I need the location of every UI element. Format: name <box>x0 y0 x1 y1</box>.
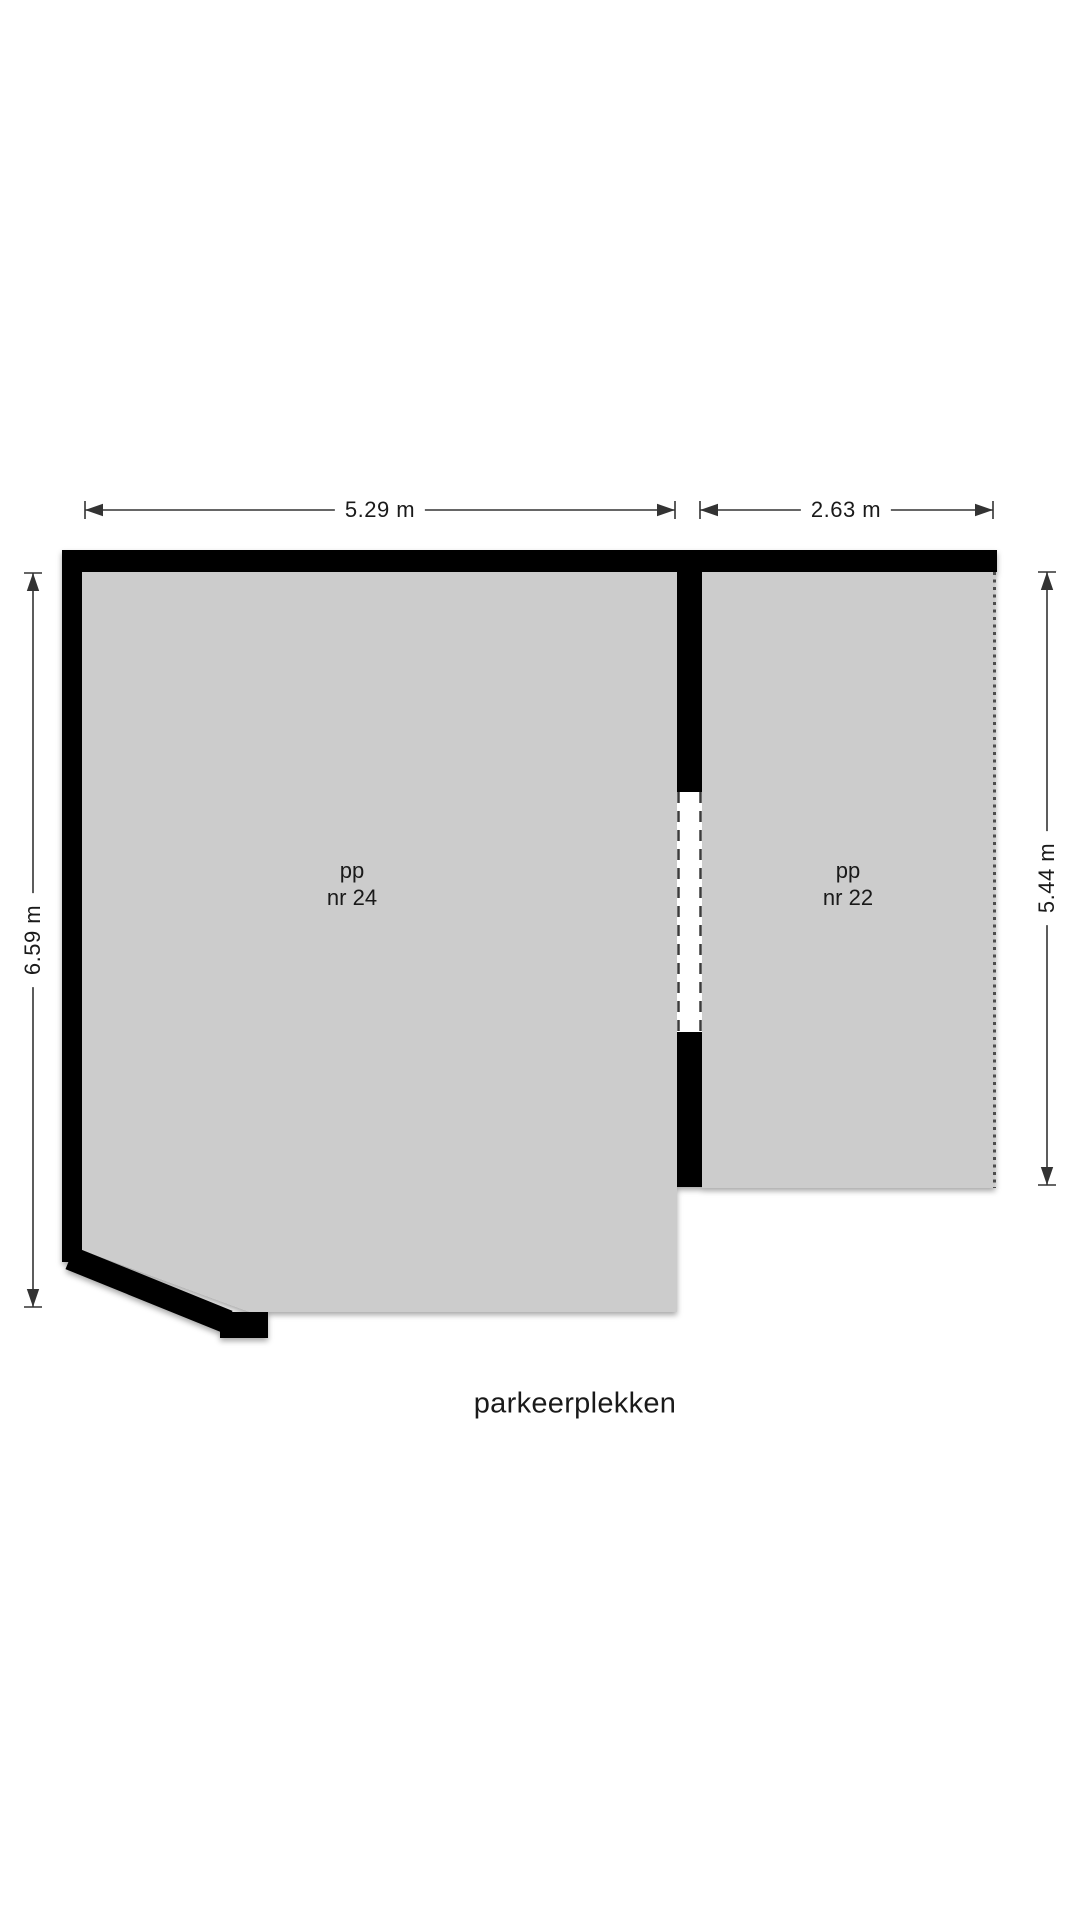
arrowhead-right <box>975 504 993 516</box>
arrowhead-up <box>1041 572 1053 590</box>
top-wall <box>62 550 997 572</box>
room-label-pp24-line2: nr 24 <box>327 884 377 911</box>
arrowhead-down <box>1041 1167 1053 1185</box>
floor-plan-svg <box>0 0 1080 1920</box>
room-label-pp22-line1: pp <box>823 857 873 884</box>
left-wall <box>62 550 82 1262</box>
floor-plan-page: 5.29 m 2.63 m 6.59 m 5.44 m pp nr 24 pp … <box>0 0 1080 1920</box>
dim-label-pp24-width: 5.29 m <box>335 497 425 523</box>
dim-label-pp22-height: 5.44 m <box>1034 831 1060 925</box>
arrowhead-up <box>27 573 39 591</box>
room-pp24-floor <box>82 572 677 1312</box>
room-label-pp22: pp nr 22 <box>823 857 873 911</box>
divider-wall-upper <box>677 572 702 792</box>
dim-label-pp24-height: 6.59 m <box>20 893 46 987</box>
arrowhead-right <box>657 504 675 516</box>
door-opening <box>677 792 702 1032</box>
arrowhead-left <box>85 504 103 516</box>
bottom-wall-stub <box>220 1312 268 1338</box>
divider-wall-lower <box>677 1032 702 1187</box>
plan-caption: parkeerplekken <box>474 1388 677 1421</box>
room-label-pp24-line1: pp <box>327 857 377 884</box>
dim-label-pp22-width: 2.63 m <box>801 497 891 523</box>
room-label-pp24: pp nr 24 <box>327 857 377 911</box>
arrowhead-left <box>700 504 718 516</box>
plan-body <box>62 550 997 1338</box>
arrowhead-down <box>27 1289 39 1307</box>
door-opening-gap <box>677 792 702 1032</box>
room-label-pp22-line2: nr 22 <box>823 884 873 911</box>
